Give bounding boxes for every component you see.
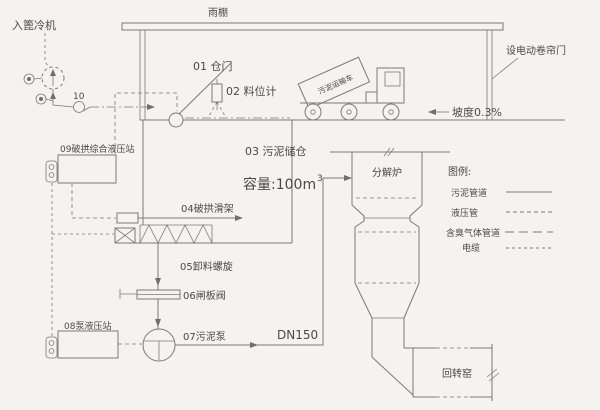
- hydraulic-stations: 09破拱综合液压站 08泵液压站: [46, 93, 177, 358]
- canopy-roof: [122, 23, 503, 30]
- truck-wheel: [383, 104, 399, 120]
- rolling-door-leader: [492, 58, 518, 79]
- odor-gas-arrow: [147, 104, 155, 110]
- truck-wheel: [341, 104, 357, 120]
- silo-capacity: 容量:100m: [243, 176, 316, 193]
- odor-gas-system: 入篦冷机 10: [12, 18, 155, 113]
- legend-label-sludge-pipe: 污泥管道: [451, 187, 487, 199]
- door-label: 01 仓门: [193, 59, 233, 73]
- pump-hydraulic-box: [58, 331, 118, 358]
- gate-valve-label: 06闸板阀: [183, 289, 226, 302]
- cad-drawing-canvas: 雨棚 设电动卷帘门 坡度0.3% 污泥运输车: [0, 0, 600, 410]
- pipe-inlet-arrow: [344, 175, 352, 181]
- rotary-kiln: 回转窑: [413, 344, 499, 401]
- fan-number-label: 10: [73, 92, 85, 102]
- grate-cooler-label: 入篦冷机: [12, 18, 56, 32]
- level-gauge-label: 02 料位计: [226, 84, 277, 98]
- level-gauge-probe: [217, 102, 225, 116]
- calciner-kiln-connection: [372, 357, 413, 395]
- sludge-truck: 污泥运输车: [298, 57, 404, 120]
- junction-box: [46, 337, 57, 358]
- calciner-label: 分解炉: [372, 166, 402, 179]
- flow-arrow-up: [50, 92, 56, 99]
- silo-door-hinge: [169, 113, 183, 127]
- legend-label-cable: 电缆: [462, 242, 480, 254]
- level-gauge-probe: [209, 102, 217, 116]
- schematic-svg: 雨棚 设电动卷帘门 坡度0.3% 污泥运输车: [0, 0, 600, 410]
- legend: 图例: 污泥管道 液压管 含臭气体管道 电缆: [446, 165, 553, 254]
- hydraulic-pipe-to-arch-breaker: [72, 183, 116, 218]
- pipe-flow-arrow: [250, 342, 258, 348]
- discharge-screw-label: 05卸料螺旋: [180, 260, 233, 273]
- rotary-kiln-label: 回转窑: [442, 367, 472, 380]
- sludge-pump-label: 07污泥泵: [183, 330, 226, 343]
- rolling-door-label: 设电动卷帘门: [506, 44, 566, 57]
- duct-to-cooler: [45, 33, 50, 68]
- main-hydraulic-box: [58, 155, 116, 183]
- silo-capacity-superscript: 3: [317, 174, 323, 184]
- legend-title: 图例:: [448, 165, 471, 178]
- slope-label: 坡度0.3%: [452, 105, 502, 119]
- flow-arrow-up: [50, 69, 56, 76]
- column-left: [140, 30, 145, 120]
- discharge-screw-zigzag: [140, 225, 212, 243]
- sludge-silo: 03 污泥储仓 容量:100m 3 01 仓门 02 料位计: [133, 59, 323, 243]
- arch-breaker-label: 04破拱滑架: [181, 202, 234, 215]
- calciner: 分解炉: [330, 148, 450, 395]
- legend-label-hydraulic-pipe: 液压管: [451, 207, 478, 219]
- main-hydraulic-label: 09破拱综合液压站: [60, 143, 134, 155]
- legend-label-odor-gas-pipe: 含臭气体管道: [446, 227, 500, 239]
- flow-arrow-down: [155, 278, 161, 286]
- canopy-label: 雨棚: [208, 6, 228, 19]
- slope-arrow: [428, 109, 436, 115]
- silo-title: 03 污泥储仓: [245, 144, 307, 158]
- truck-dump-bed: 污泥运输车: [298, 57, 369, 109]
- pump-hydraulic-label: 08泵液压站: [64, 320, 111, 332]
- dn150-label: DN150: [277, 328, 318, 342]
- level-gauge-body: [212, 84, 222, 102]
- arch-breaker-arrowhead: [235, 215, 243, 221]
- flow-arrow-down: [155, 319, 161, 327]
- blower-symbol: [74, 102, 85, 113]
- junction-box: [46, 161, 57, 182]
- truck-wheel: [305, 104, 321, 120]
- arch-breaker-cylinder: [117, 213, 138, 223]
- discharge-line: 05卸料螺旋 06闸板阀 07污泥泵 DN150: [120, 175, 352, 361]
